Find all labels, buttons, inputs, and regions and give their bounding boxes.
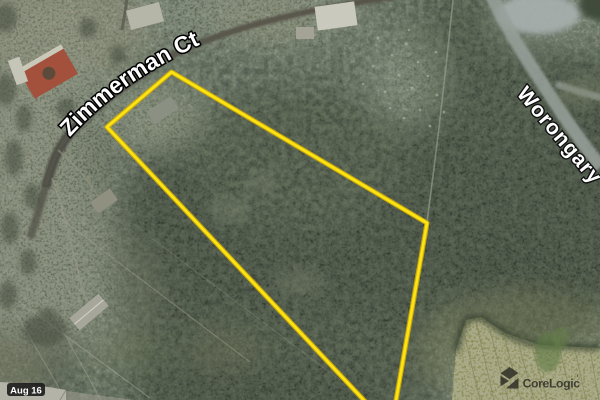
svg-text:CoreLogic: CoreLogic — [523, 377, 581, 391]
svg-text:Aug 16: Aug 16 — [10, 386, 42, 397]
